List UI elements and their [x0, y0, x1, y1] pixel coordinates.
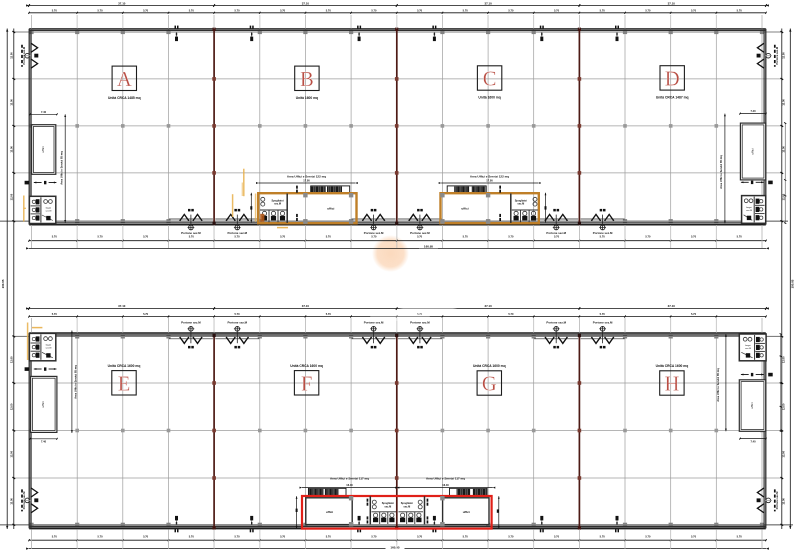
- svg-text:12.00: 12.00: [9, 146, 13, 153]
- svg-text:Portone sez.M: Portone sez.M: [22, 492, 26, 510]
- svg-text:sez.M: sez.M: [403, 505, 410, 508]
- svg-text:5.70: 5.70: [737, 8, 743, 12]
- svg-text:sez.M: sez.M: [45, 348, 51, 350]
- svg-text:5.70: 5.70: [234, 234, 240, 238]
- svg-text:5.70: 5.70: [52, 234, 58, 238]
- svg-text:5.70: 5.70: [371, 8, 377, 12]
- svg-text:5.70: 5.70: [463, 8, 469, 12]
- svg-text:12.00: 12.00: [9, 450, 13, 457]
- svg-text:37.10: 37.10: [668, 304, 676, 308]
- svg-text:Area Uffici e Servizi 117 mq: Area Uffici e Servizi 117 mq: [426, 476, 465, 480]
- svg-text:Unità CRCA 1600 mq: Unità CRCA 1600 mq: [656, 364, 689, 368]
- svg-text:5.70: 5.70: [417, 234, 423, 238]
- svg-text:Unità CRCA 1600 mq: Unità CRCA 1600 mq: [473, 364, 506, 368]
- svg-text:5.70: 5.70: [234, 312, 240, 316]
- svg-text:5.70: 5.70: [97, 8, 103, 12]
- svg-text:Unità CRCA 1485 mq: Unità CRCA 1485 mq: [108, 96, 141, 100]
- svg-text:Portone sez.M: Portone sez.M: [181, 231, 201, 235]
- svg-text:uffici: uffici: [327, 207, 334, 211]
- svg-text:5.70: 5.70: [600, 234, 606, 238]
- svg-text:Unità 1600 mq: Unità 1600 mq: [296, 96, 318, 100]
- svg-text:5.70: 5.70: [326, 535, 332, 539]
- svg-text:17.00: 17.00: [486, 179, 493, 183]
- svg-text:100.95: 100.95: [1, 279, 5, 288]
- svg-text:5.70: 5.70: [189, 234, 195, 238]
- svg-text:uffici: uffici: [461, 207, 468, 211]
- svg-text:Area Uffici e Servizi 85 mq: Area Uffici e Servizi 85 mq: [719, 155, 723, 189]
- svg-text:Portone sez.M: Portone sez.M: [227, 321, 247, 325]
- svg-text:D: D: [665, 68, 680, 90]
- svg-text:12.00: 12.00: [9, 356, 13, 363]
- svg-text:Portone sez.M: Portone sez.M: [410, 321, 430, 325]
- svg-text:uffici: uffici: [326, 510, 333, 514]
- svg-text:bagni: bagni: [46, 208, 52, 210]
- svg-text:5.70: 5.70: [143, 8, 149, 12]
- svg-text:12.00: 12.00: [782, 450, 786, 457]
- svg-text:Portone sez.M: Portone sez.M: [364, 231, 384, 235]
- svg-text:5.70: 5.70: [508, 8, 514, 12]
- svg-text:C: C: [483, 69, 497, 91]
- svg-text:5.70: 5.70: [189, 8, 195, 12]
- svg-text:Portone sez.M: Portone sez.M: [775, 492, 779, 510]
- svg-text:37.10: 37.10: [302, 304, 310, 308]
- svg-text:Portone sez.M: Portone sez.M: [364, 321, 384, 325]
- svg-text:5.70: 5.70: [463, 234, 469, 238]
- svg-text:5.70: 5.70: [326, 312, 332, 316]
- svg-text:sez.M: sez.M: [517, 203, 524, 206]
- svg-text:E: E: [118, 373, 131, 395]
- svg-text:37.10: 37.10: [484, 304, 492, 308]
- svg-text:Area Uffici e Servizi 122 mq: Area Uffici e Servizi 122 mq: [470, 175, 509, 179]
- svg-text:uffici: uffici: [41, 146, 45, 152]
- svg-text:12.00: 12.00: [9, 99, 13, 106]
- svg-text:5.70: 5.70: [280, 8, 286, 12]
- svg-text:37.10: 37.10: [668, 1, 676, 5]
- svg-text:5.70: 5.70: [691, 535, 697, 539]
- svg-text:16.40: 16.40: [442, 483, 449, 487]
- svg-text:5.70: 5.70: [371, 234, 377, 238]
- svg-text:uffici: uffici: [41, 401, 45, 407]
- svg-text:37.10: 37.10: [118, 1, 126, 5]
- svg-text:sez.M: sez.M: [745, 348, 751, 350]
- svg-text:5.70: 5.70: [52, 8, 58, 12]
- svg-text:5.70: 5.70: [508, 535, 514, 539]
- svg-text:Portone sez.M: Portone sez.M: [546, 231, 566, 235]
- svg-text:bagni: bagni: [746, 207, 752, 209]
- svg-text:5.70: 5.70: [463, 535, 469, 539]
- svg-text:5.70: 5.70: [554, 535, 560, 539]
- svg-text:sez.M: sez.M: [274, 203, 281, 206]
- svg-text:Unità CRCA 1600 mq: Unità CRCA 1600 mq: [108, 364, 141, 368]
- svg-text:uffici: uffici: [463, 510, 470, 514]
- svg-text:12.00: 12.00: [782, 403, 786, 410]
- svg-text:Unità 1600 mq: Unità 1600 mq: [478, 96, 500, 100]
- svg-text:5.70: 5.70: [691, 8, 697, 12]
- svg-text:5.70: 5.70: [600, 8, 606, 12]
- svg-text:5.70: 5.70: [508, 312, 514, 316]
- svg-text:12.00: 12.00: [782, 356, 786, 363]
- svg-text:12.00: 12.00: [9, 498, 13, 505]
- svg-text:5.70: 5.70: [143, 535, 149, 539]
- svg-text:7.40: 7.40: [750, 439, 756, 443]
- svg-text:5.70: 5.70: [52, 312, 58, 316]
- svg-text:5.70: 5.70: [417, 535, 423, 539]
- svg-text:Area Uffici e Servizi 85 mq: Area Uffici e Servizi 85 mq: [716, 368, 720, 402]
- svg-text:sez.M: sez.M: [45, 211, 51, 213]
- svg-text:37.10: 37.10: [302, 1, 310, 5]
- svg-text:12.00: 12.00: [9, 52, 13, 59]
- svg-text:5.70: 5.70: [234, 535, 240, 539]
- svg-text:5.70: 5.70: [645, 234, 651, 238]
- svg-text:5.70: 5.70: [600, 312, 606, 316]
- svg-text:5.70: 5.70: [691, 234, 697, 238]
- svg-text:sez.M: sez.M: [384, 505, 391, 508]
- svg-text:5.70: 5.70: [97, 535, 103, 539]
- svg-text:B: B: [300, 69, 314, 91]
- svg-text:37.10: 37.10: [118, 304, 126, 308]
- svg-text:16.40: 16.40: [346, 483, 353, 487]
- svg-text:5.70: 5.70: [234, 8, 240, 12]
- svg-text:5.70: 5.70: [691, 312, 697, 316]
- svg-text:Unità CRCA 1487 mq: Unità CRCA 1487 mq: [656, 96, 689, 100]
- svg-text:5.70: 5.70: [326, 8, 332, 12]
- svg-text:Portone sez.M: Portone sez.M: [227, 231, 247, 235]
- svg-text:Portone sez.M: Portone sez.M: [546, 321, 566, 325]
- svg-text:Area Uffici e Servizi 117 mq: Area Uffici e Servizi 117 mq: [330, 476, 369, 480]
- svg-text:7.40: 7.40: [41, 110, 47, 114]
- svg-text:5.70: 5.70: [554, 8, 560, 12]
- svg-text:100.95: 100.95: [790, 279, 794, 288]
- svg-text:5.70: 5.70: [280, 535, 286, 539]
- svg-text:5.70: 5.70: [417, 8, 423, 12]
- svg-text:5.70: 5.70: [645, 8, 651, 12]
- svg-text:Portone sez.M: Portone sez.M: [593, 321, 613, 325]
- svg-text:Unità CRCA 1600 mq: Unità CRCA 1600 mq: [290, 364, 323, 368]
- svg-text:A: A: [117, 69, 132, 91]
- svg-text:5.70: 5.70: [600, 535, 606, 539]
- svg-text:5.70: 5.70: [280, 234, 286, 238]
- svg-text:7.40: 7.40: [750, 109, 756, 113]
- svg-text:7.40: 7.40: [41, 440, 47, 444]
- svg-text:5.70: 5.70: [52, 535, 58, 539]
- svg-text:17.00: 17.00: [303, 179, 310, 183]
- svg-text:sez.M: sez.M: [746, 210, 752, 212]
- svg-text:uffici: uffici: [750, 402, 754, 408]
- svg-text:12.00: 12.00: [782, 52, 786, 59]
- svg-text:5.70: 5.70: [143, 312, 149, 316]
- svg-text:G: G: [482, 374, 497, 396]
- svg-text:5.70: 5.70: [554, 234, 560, 238]
- svg-text:5.70: 5.70: [645, 535, 651, 539]
- svg-text:5.70: 5.70: [737, 234, 743, 238]
- svg-text:5.70: 5.70: [97, 234, 103, 238]
- svg-text:5.70: 5.70: [371, 535, 377, 539]
- svg-text:Area Uffici e Servizi 85 mq: Area Uffici e Servizi 85 mq: [59, 151, 63, 185]
- svg-text:12.00: 12.00: [782, 498, 786, 505]
- svg-text:H: H: [664, 374, 679, 396]
- svg-text:37.10: 37.10: [484, 1, 492, 5]
- svg-text:160.95: 160.95: [390, 545, 400, 549]
- svg-text:5.70: 5.70: [737, 535, 743, 539]
- svg-text:Portone sez.M: Portone sez.M: [181, 321, 201, 325]
- svg-text:12.00: 12.00: [9, 403, 13, 410]
- svg-text:Portone sez.M: Portone sez.M: [410, 231, 430, 235]
- svg-text:12.00: 12.00: [782, 99, 786, 106]
- svg-text:5.70: 5.70: [189, 535, 195, 539]
- svg-text:F: F: [301, 373, 312, 395]
- svg-text:uffici: uffici: [751, 148, 755, 154]
- svg-text:12.00: 12.00: [9, 193, 13, 200]
- svg-text:bagni: bagni: [745, 345, 751, 347]
- svg-text:Area Uffici e Servizi 122 mq: Area Uffici e Servizi 122 mq: [287, 175, 326, 179]
- svg-text:5.70: 5.70: [326, 234, 332, 238]
- svg-text:Portone sez.M: Portone sez.M: [22, 47, 26, 65]
- svg-text:5.70: 5.70: [508, 234, 514, 238]
- svg-text:5.70: 5.70: [143, 234, 149, 238]
- svg-text:Portone sez.M: Portone sez.M: [593, 231, 613, 235]
- svg-text:160.95: 160.95: [424, 244, 434, 248]
- svg-text:Portone sez.M: Portone sez.M: [775, 47, 779, 65]
- svg-text:Area Uffici e Servizi 85 mq: Area Uffici e Servizi 85 mq: [74, 365, 78, 399]
- svg-text:bagni: bagni: [46, 345, 52, 347]
